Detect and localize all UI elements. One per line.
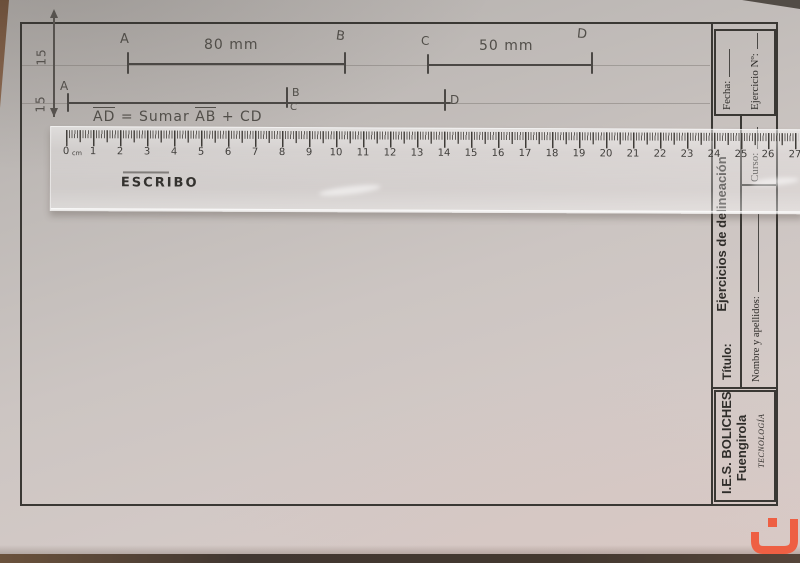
formula-mid: = Sumar — [121, 109, 190, 125]
formula-seg-ad: AD — [93, 107, 115, 125]
ruler-number: 19 — [566, 148, 593, 159]
titleblock-left-border — [711, 22, 713, 504]
ruler-number: 6 — [215, 147, 242, 158]
ruler-number: 17 — [512, 148, 539, 159]
department-label: TECNOLOGÍA — [757, 396, 766, 468]
ruler-number: 9 — [296, 147, 323, 158]
watermark-logo — [750, 513, 800, 559]
label-a-lower: A — [60, 79, 69, 93]
nombre-blank-line — [748, 214, 759, 292]
nombre-label: Nombre y apellidos: — [751, 296, 762, 382]
fecha-blank-line — [719, 49, 730, 77]
ruler-scale-numbers: 0 12345678910111213141516171819202122232… — [53, 146, 800, 160]
label-d-lower: D — [450, 93, 460, 107]
segment-cd-tick-d — [591, 52, 593, 74]
ruler-number: 8 — [269, 147, 296, 158]
ruler-shine-streak — [319, 183, 382, 198]
margin-dim-label-top: 15 — [35, 48, 49, 65]
margin-dim-label-bottom: 15 — [34, 95, 48, 112]
ruler-number: 3 — [134, 146, 161, 157]
ruler-number: 12 — [377, 147, 404, 158]
segment-cd-line — [428, 64, 593, 66]
worksheet-paper: Fecha: Ejercicio Nº: Curso: Ejercicios d… — [0, 0, 800, 555]
ruler-number: 14 — [431, 148, 458, 159]
ruler-number: 26 — [755, 149, 782, 160]
guide-line-upper — [22, 65, 710, 66]
label-b-upper: B — [335, 28, 347, 44]
ejercicio-label: Ejercicio Nº: — [749, 53, 761, 110]
construction-tick-a — [67, 93, 69, 112]
segment-ab-line — [128, 63, 346, 65]
titleblock-school-cell-top — [712, 387, 776, 389]
formula-tail: + CD — [222, 109, 263, 125]
margin-dimension-line — [53, 11, 55, 117]
titulo-label: Título: — [720, 330, 734, 380]
segment-cd-length: 50 mm — [479, 38, 534, 54]
ruler-number: 23 — [674, 149, 701, 160]
ruler-shine-streak-2 — [751, 176, 799, 187]
ruler-number: 13 — [404, 148, 431, 159]
ruler-unit-label: cm — [72, 149, 82, 157]
ejercicio-blank-line — [747, 33, 758, 49]
ruler-number: 11 — [350, 147, 377, 158]
dimension-arrow-up — [50, 9, 58, 18]
ruler-number: 10 — [323, 147, 350, 158]
ruler-number: 2 — [107, 146, 134, 157]
label-c-lower: C — [290, 102, 298, 113]
ruler-brand-logo: ESCRIBO — [121, 175, 199, 190]
drawing-frame — [20, 22, 778, 506]
school-name-line2: Fuengirola — [734, 402, 749, 494]
ruler-number: 1 — [80, 146, 107, 157]
segment-ab-tick-b — [344, 52, 346, 74]
construction-formula: AD = Sumar AB + CD — [93, 109, 263, 125]
construction-tick-d — [444, 89, 446, 111]
ruler-number: 18 — [539, 148, 566, 159]
label-a-upper: A — [120, 32, 130, 47]
segment-cd-tick-c — [427, 54, 429, 74]
school-name: I.E.S. BOLICHES Fuengirola — [719, 402, 749, 494]
field-ejercicio: Ejercicio Nº: — [747, 28, 761, 110]
ruler-number: 25 — [728, 149, 755, 160]
label-b-lower: B — [292, 86, 301, 99]
label-c-upper: C — [421, 34, 430, 48]
ruler-number: 15 — [458, 148, 485, 159]
ruler-number: 5 — [188, 147, 215, 158]
worksheet-photo: Fecha: Ejercicio Nº: Curso: Ejercicios d… — [0, 0, 800, 563]
ruler-number: 16 — [485, 148, 512, 159]
field-fecha: Fecha: — [719, 30, 733, 110]
ruler-number: 7 — [242, 147, 269, 158]
field-nombre: Nombre y apellidos: — [748, 197, 762, 382]
construction-line-ad — [68, 102, 451, 104]
table-edge-bottom — [0, 554, 800, 563]
label-d-upper: D — [576, 26, 589, 42]
fecha-label: Fecha: — [721, 81, 733, 110]
dimension-arrow-down — [50, 108, 58, 117]
ruler-number: 24 — [701, 149, 728, 160]
school-name-line1: I.E.S. BOLICHES — [719, 402, 734, 494]
segment-ab-tick-a — [127, 52, 129, 74]
ruler: 0 12345678910111213141516171819202122232… — [50, 126, 800, 214]
ruler-number: 20 — [593, 148, 620, 159]
segment-ab-length: 80 mm — [204, 37, 259, 53]
ruler-number: 27 — [782, 149, 800, 160]
ruler-number: 4 — [161, 146, 188, 157]
ruler-number: 22 — [647, 149, 674, 160]
formula-seg-ab: AB — [195, 107, 216, 125]
construction-tick-bc — [286, 87, 288, 108]
ruler-number: 21 — [620, 148, 647, 159]
